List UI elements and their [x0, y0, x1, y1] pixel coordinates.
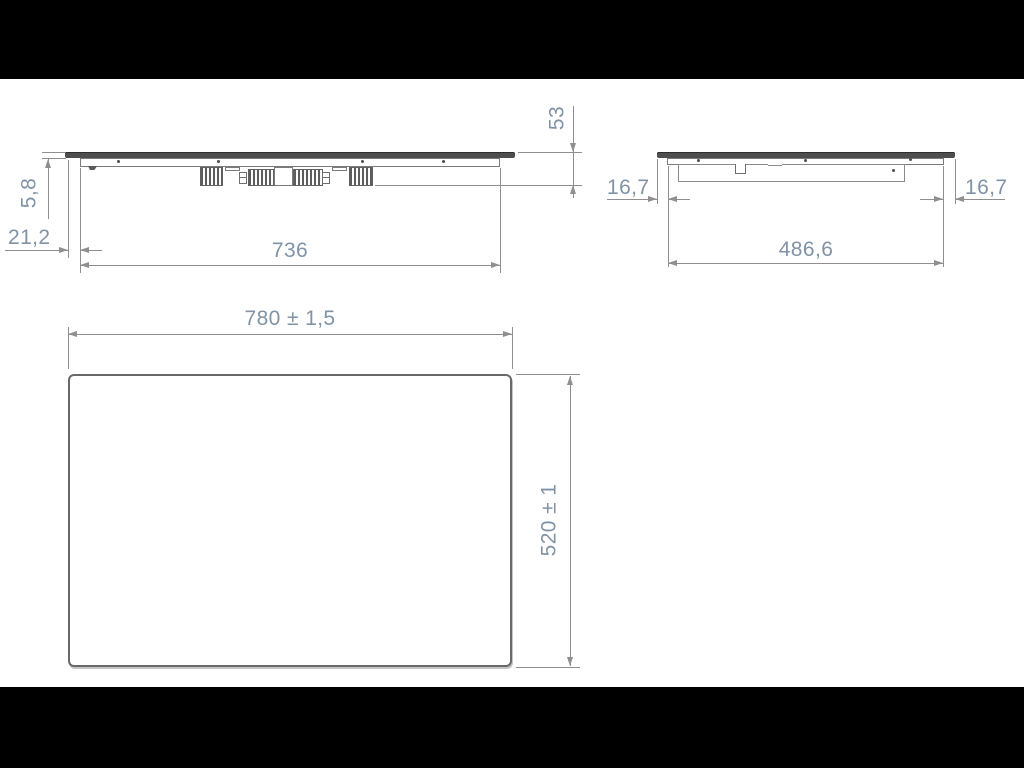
- dimension-label-top-depth: 520 ± 1: [539, 484, 560, 557]
- arrowhead-up: [567, 376, 573, 385]
- dimension-line: [570, 376, 571, 666]
- extension-line: [512, 327, 513, 369]
- plan-view: 780 ± 1,5 520 ± 1: [0, 0, 1024, 768]
- extension-line: [516, 374, 580, 375]
- arrowhead-left: [68, 331, 77, 337]
- technical-drawing-sheet: 5,8 21,2 736 53: [0, 0, 1024, 768]
- dimension-line: [68, 334, 512, 335]
- extension-line: [516, 667, 580, 668]
- arrowhead-right: [503, 331, 512, 337]
- dimension-label-top-width: 780 ± 1,5: [244, 308, 335, 329]
- hob-outline-plan: [68, 374, 512, 667]
- arrowhead-down: [567, 657, 573, 666]
- letterbox-bottom: [0, 687, 1024, 768]
- letterbox-top: [0, 0, 1024, 79]
